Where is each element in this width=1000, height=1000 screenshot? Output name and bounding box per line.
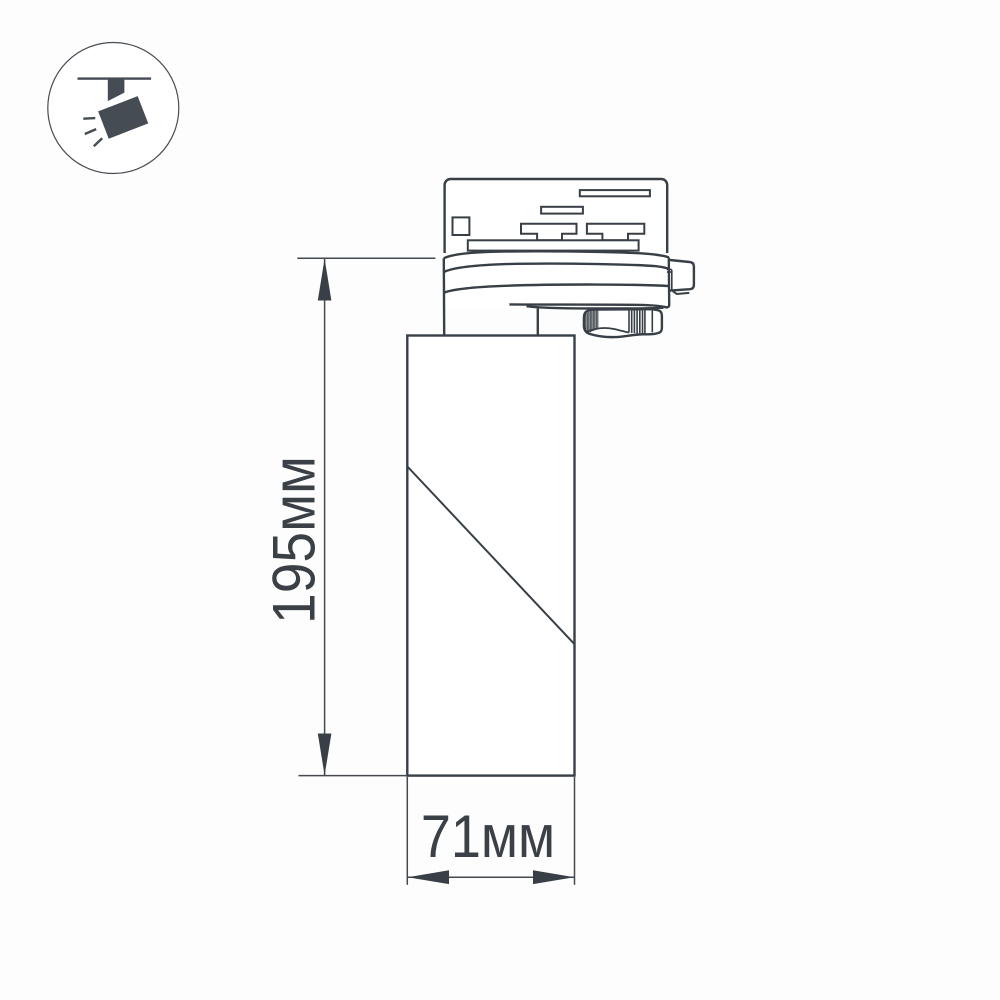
svg-text:71мм: 71мм <box>421 803 555 870</box>
svg-text:195мм: 195мм <box>261 456 328 624</box>
